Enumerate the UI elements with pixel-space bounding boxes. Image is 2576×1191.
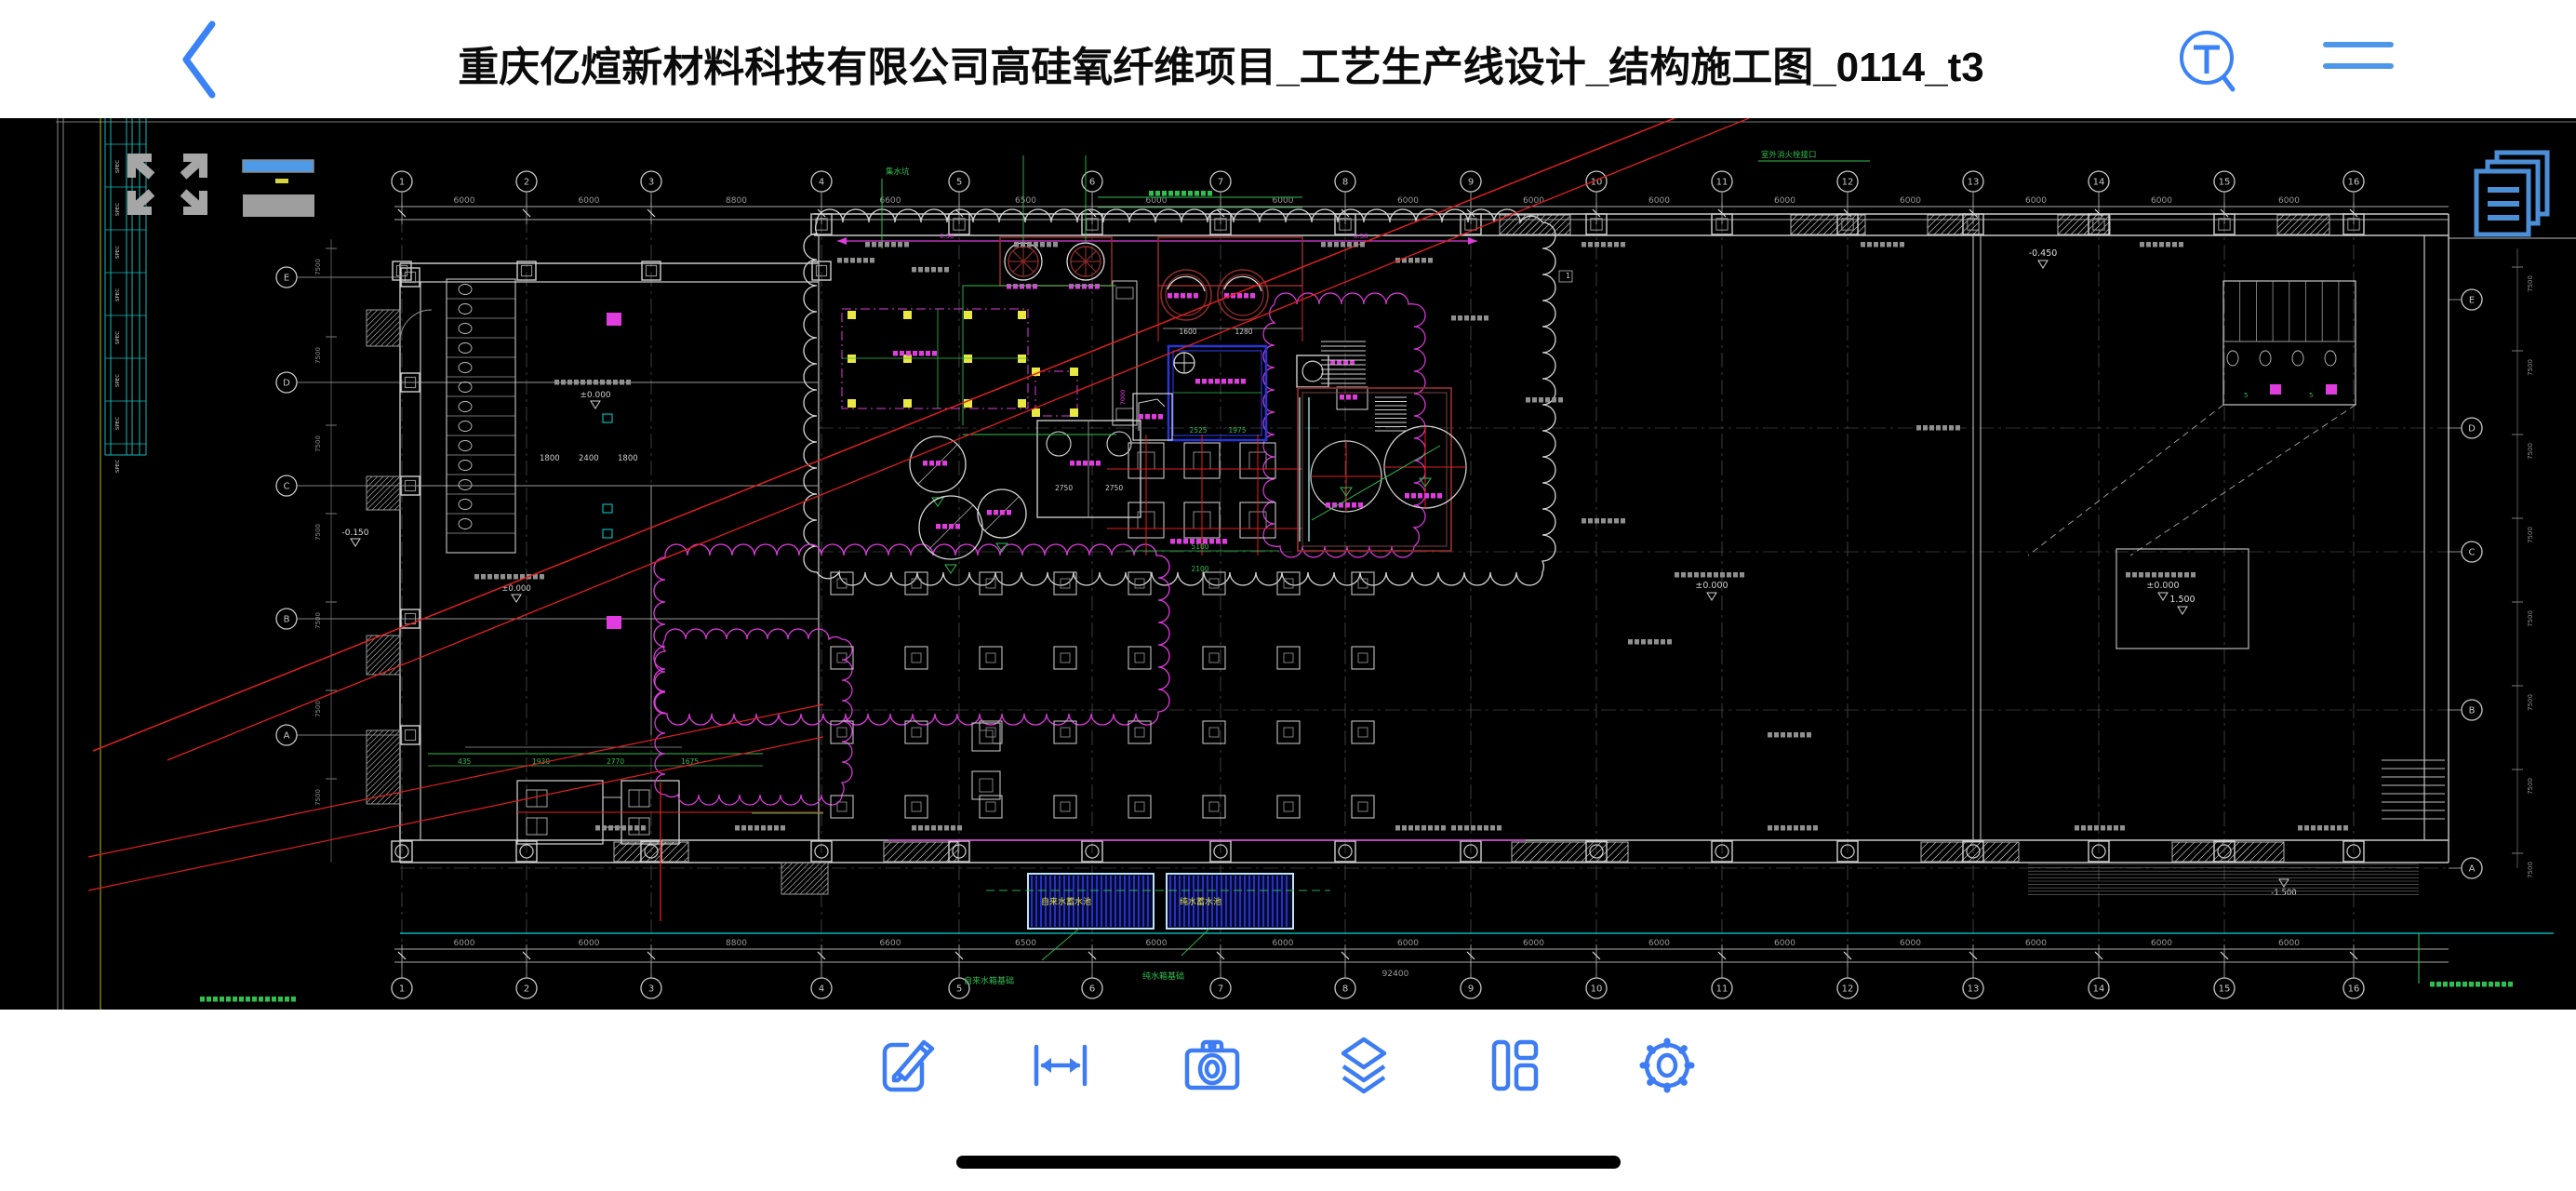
svg-text:6000: 6000 (454, 939, 475, 948)
svg-text:9: 9 (1468, 178, 1474, 188)
svg-text:6000: 6000 (1900, 196, 1921, 206)
svg-text:15: 15 (2219, 178, 2231, 188)
red-construction-lines (88, 118, 1749, 921)
svg-text:6000: 6000 (1774, 939, 1795, 948)
back-button[interactable] (166, 17, 233, 102)
stacked-pages-icon (2467, 149, 2553, 240)
svg-text:3: 3 (648, 984, 654, 995)
svg-text:11: 11 (1716, 178, 1728, 188)
svg-text:A: A (2469, 864, 2476, 875)
pages-button[interactable] (2467, 149, 2553, 245)
svg-text:纯水箱基础: 纯水箱基础 (1142, 970, 1184, 982)
svg-text:7500: 7500 (314, 524, 322, 541)
svg-text:1975: 1975 (1228, 426, 1246, 435)
top-bar: 重庆亿煊新材料科技有限公司高硅氧纤维项目_工艺生产线设计_结构施工图_0114_… (0, 0, 2576, 118)
svg-text:1800: 1800 (618, 454, 638, 463)
svg-text:6500: 6500 (1015, 196, 1036, 206)
svg-text:2: 2 (524, 984, 529, 995)
svg-text:±0.000: ±0.000 (1695, 581, 1728, 591)
svg-text:7500: 7500 (314, 701, 322, 717)
svg-text:11: 11 (1716, 984, 1728, 995)
tool-row (0, 1036, 2576, 1095)
tool-layers-button[interactable] (1334, 1036, 1394, 1095)
svg-text:7500: 7500 (314, 259, 322, 275)
svg-text:C: C (2469, 548, 2476, 558)
svg-text:室外消火栓接口: 室外消火栓接口 (1761, 150, 1817, 160)
svg-text:7: 7 (1218, 178, 1223, 188)
svg-text:6000: 6000 (1900, 939, 1921, 948)
svg-text:8: 8 (1342, 178, 1348, 188)
svg-text:14: 14 (2093, 984, 2105, 995)
cad-canvas-wrap: SPECSPECSPECSPECSPECSPECSPECSPEC60006000… (0, 118, 2576, 1010)
svg-text:SPEC: SPEC (115, 331, 121, 344)
svg-text:0.38: 0.38 (940, 233, 954, 240)
double-arrow-ruler-icon (1031, 1036, 1090, 1095)
svg-text:2770: 2770 (607, 757, 624, 766)
wall-annotations (595, 242, 2348, 831)
svg-text:-1.500: -1.500 (2271, 889, 2296, 898)
svg-text:6: 6 (1089, 984, 1095, 995)
svg-text:SPEC: SPEC (115, 417, 121, 430)
scale-bars-icon (242, 159, 316, 224)
svg-text:9: 9 (1468, 984, 1474, 995)
svg-text:自来水箱基础: 自来水箱基础 (964, 975, 1014, 986)
svg-text:6000: 6000 (2025, 196, 2047, 206)
svg-text:SPEC: SPEC (115, 160, 121, 173)
chevron-left-icon (186, 24, 212, 95)
svg-text:7500: 7500 (2527, 527, 2534, 543)
svg-text:±0.000: ±0.000 (2146, 581, 2179, 591)
svg-text:5: 5 (956, 178, 962, 188)
right-wing: 551.500-0.450±0.000±0.000-1.500 (1582, 248, 2513, 987)
svg-text:7500: 7500 (2527, 862, 2534, 878)
svg-text:2750: 2750 (1105, 484, 1123, 492)
svg-text:C: C (284, 482, 290, 492)
revision-clouds (654, 209, 1555, 805)
svg-text:SPEC: SPEC (115, 288, 121, 301)
svg-text:14: 14 (2093, 178, 2105, 188)
svg-text:2750: 2750 (1055, 484, 1073, 492)
equipment-zone: 0.380.3816001280700025251975275027505100… (837, 150, 1870, 573)
svg-text:4: 4 (819, 984, 824, 995)
tool-measure-button[interactable] (1031, 1036, 1090, 1095)
svg-text:7500: 7500 (2527, 610, 2534, 627)
svg-text:6000: 6000 (1273, 939, 1294, 948)
svg-text:6500: 6500 (1015, 939, 1036, 948)
svg-text:1.500: 1.500 (2169, 595, 2195, 605)
svg-text:6000: 6000 (2151, 196, 2172, 206)
svg-text:13: 13 (1968, 178, 1980, 188)
svg-text:-0.450: -0.450 (2029, 248, 2058, 259)
svg-text:D: D (2468, 424, 2476, 435)
svg-text:435: 435 (458, 757, 472, 766)
svg-text:15: 15 (2219, 984, 2231, 995)
svg-text:16: 16 (2348, 178, 2360, 188)
svg-text:A: A (284, 731, 290, 742)
svg-text:13: 13 (1968, 984, 1980, 995)
svg-text:7500: 7500 (314, 612, 322, 629)
find-text-button[interactable] (2169, 20, 2246, 99)
svg-text:6000: 6000 (2278, 196, 2300, 206)
svg-text:16: 16 (2348, 984, 2360, 995)
svg-text:7500: 7500 (2527, 778, 2534, 795)
svg-text:±0.000: ±0.000 (580, 391, 611, 400)
svg-text:6000: 6000 (1774, 196, 1795, 206)
pile-cap-grid (831, 572, 1374, 818)
svg-text:1: 1 (399, 984, 405, 995)
svg-text:SPEC: SPEC (115, 246, 121, 259)
fullscreen-button[interactable] (124, 150, 211, 223)
home-indicator (956, 1156, 1621, 1169)
svg-text:2525: 2525 (1189, 426, 1207, 435)
svg-text:6000: 6000 (1397, 196, 1419, 206)
svg-text:6000: 6000 (1146, 939, 1168, 948)
layer-stack-icon (1334, 1036, 1394, 1095)
svg-text:8: 8 (1342, 984, 1348, 995)
svg-text:7500: 7500 (314, 347, 322, 364)
svg-text:SPEC: SPEC (115, 203, 121, 216)
svg-text:5: 5 (2244, 392, 2248, 399)
svg-text:6000: 6000 (1523, 939, 1544, 948)
gear-icon (1637, 1036, 1697, 1095)
svg-text:6000: 6000 (454, 196, 475, 206)
svg-text:6000: 6000 (579, 939, 600, 948)
frame-lines: SPECSPECSPECSPECSPECSPECSPECSPEC (56, 118, 2576, 1010)
svg-text:92400: 92400 (1382, 970, 1409, 979)
svg-text:7500: 7500 (314, 789, 322, 806)
svg-text:E: E (284, 274, 289, 284)
svg-text:12: 12 (1842, 984, 1854, 995)
svg-text:8800: 8800 (726, 196, 747, 206)
svg-text:SPEC: SPEC (115, 374, 121, 387)
svg-text:7500: 7500 (2527, 694, 2534, 711)
svg-text:10: 10 (1591, 984, 1603, 995)
svg-text:-0.150: -0.150 (341, 529, 368, 538)
menu-button[interactable] (2313, 28, 2402, 87)
svg-text:6600: 6600 (880, 939, 901, 948)
svg-text:0.38: 0.38 (1354, 233, 1368, 240)
svg-text:6000: 6000 (1523, 196, 1544, 206)
camera-icon (1182, 1036, 1242, 1095)
svg-text:2400: 2400 (579, 454, 599, 463)
svg-text:5: 5 (2309, 392, 2313, 399)
svg-text:5: 5 (956, 984, 962, 995)
svg-text:1: 1 (1566, 272, 1570, 280)
svg-text:自来水蓄水池: 自来水蓄水池 (1041, 896, 1091, 907)
cad-drawing[interactable]: SPECSPECSPECSPECSPECSPECSPECSPEC60006000… (0, 118, 2576, 1010)
viewports-icon (1486, 1036, 1545, 1095)
svg-text:7: 7 (1218, 984, 1223, 995)
svg-text:6: 6 (1089, 178, 1095, 188)
tool-layout-button[interactable] (1486, 1036, 1545, 1095)
pencil-square-icon (879, 1036, 939, 1095)
svg-text:6000: 6000 (579, 196, 600, 206)
svg-text:8800: 8800 (726, 939, 747, 948)
svg-text:12: 12 (1842, 178, 1854, 188)
left-block-interior: 180024001800±0.000±0.000-0.1504351930277… (341, 279, 823, 844)
svg-text:7500: 7500 (2527, 443, 2534, 460)
svg-text:SPEC: SPEC (115, 460, 121, 473)
building-outline (367, 214, 2449, 863)
svg-text:7500: 7500 (314, 435, 322, 452)
svg-text:7500: 7500 (2527, 359, 2534, 376)
svg-text:6000: 6000 (2278, 939, 2300, 948)
svg-text:7000: 7000 (1119, 390, 1127, 406)
svg-text:6000: 6000 (2151, 939, 2172, 948)
svg-text:6000: 6000 (1648, 196, 1670, 206)
svg-text:D: D (283, 379, 290, 389)
svg-text:纯水蓄水池: 纯水蓄水池 (1180, 896, 1221, 907)
expand-arrows-icon (124, 150, 211, 219)
svg-text:7500: 7500 (2527, 275, 2534, 292)
two-line-menu-icon (2313, 28, 2402, 87)
scale-bars[interactable] (242, 159, 316, 229)
svg-text:1800: 1800 (540, 454, 560, 463)
svg-text:6000: 6000 (1648, 939, 1670, 948)
svg-text:6000: 6000 (1397, 939, 1419, 948)
tool-snapshot-button[interactable] (1182, 1036, 1242, 1095)
svg-text:E: E (2469, 296, 2475, 306)
page-title: 重庆亿煊新材料科技有限公司高硅氧纤维项目_工艺生产线设计_结构施工图_0114_… (458, 33, 1983, 93)
svg-text:6600: 6600 (880, 196, 901, 206)
bottom-toolbar (0, 1010, 2576, 1191)
svg-text:6000: 6000 (2025, 939, 2047, 948)
svg-text:B: B (284, 615, 290, 625)
svg-text:B: B (2469, 706, 2476, 716)
svg-text:4: 4 (819, 178, 824, 188)
svg-text:集水坑: 集水坑 (886, 167, 910, 177)
find-text-icon (2169, 20, 2246, 99)
svg-text:2: 2 (524, 178, 529, 188)
svg-text:1: 1 (399, 178, 405, 188)
svg-text:3: 3 (648, 178, 654, 188)
tool-settings-button[interactable] (1637, 1036, 1697, 1095)
tool-edit-button[interactable] (879, 1036, 939, 1095)
